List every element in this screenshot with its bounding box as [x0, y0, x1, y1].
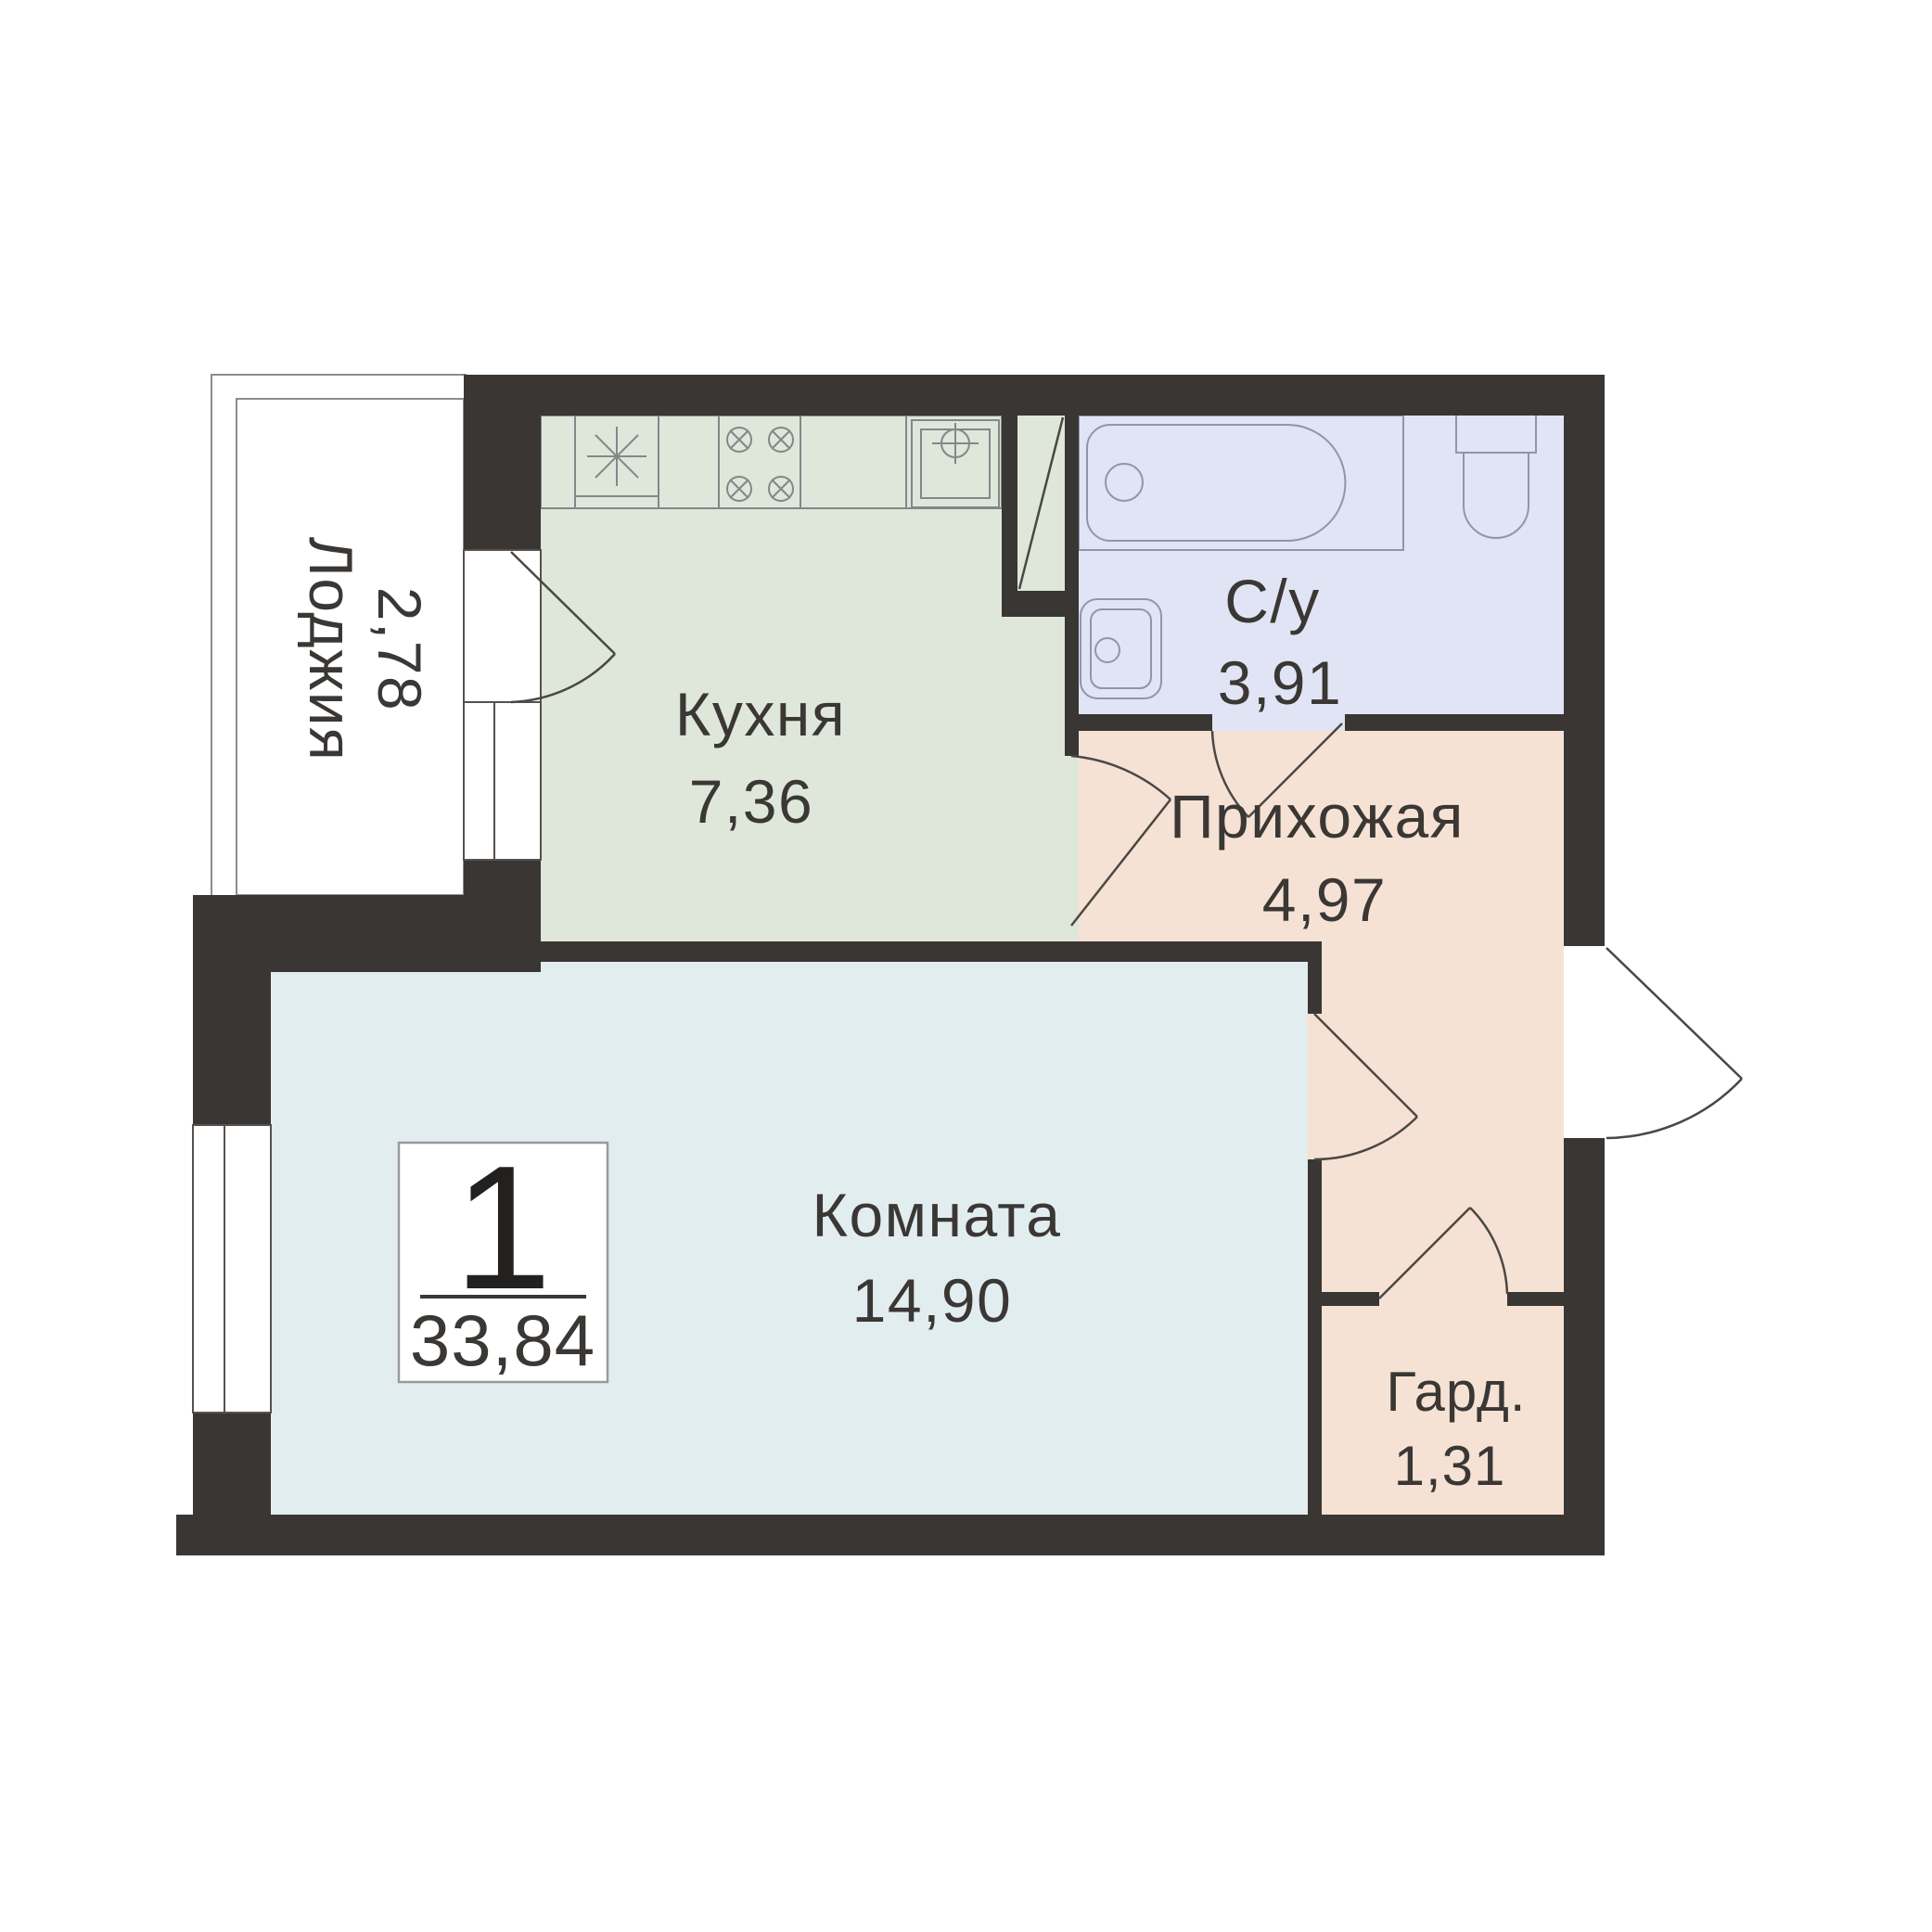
- wall-right-upper: [1564, 375, 1605, 946]
- bathroom-label: С/у: [1224, 567, 1321, 635]
- wall-left-lower: [193, 1413, 271, 1515]
- wall-left-mid: [193, 972, 271, 1125]
- floor-plan-page: Лоджия 2,78 Кухня 7,36 С/у 3,91 Прихожая…: [0, 0, 1932, 1932]
- wall-room-hallway-b: [1308, 1159, 1322, 1306]
- wardrobe-door-gap: [1379, 1292, 1507, 1306]
- room-area-label: 14,90: [852, 1266, 1013, 1335]
- kitchen-door-gap: [1065, 756, 1079, 941]
- balcony-window: [464, 702, 541, 860]
- wall-right-lower: [1564, 1138, 1605, 1555]
- entrance-door-leaf: [1606, 948, 1742, 1079]
- kitchen-area-label: 7,36: [689, 767, 813, 836]
- wall-wardrobe-top-left: [1308, 1292, 1379, 1306]
- wall-wardrobe-top-right: [1507, 1292, 1564, 1306]
- floor-plan: Лоджия 2,78 Кухня 7,36 С/у 3,91 Прихожая…: [0, 0, 1932, 1932]
- wall-room-top: [271, 941, 1322, 962]
- balcony-door-frame: [464, 550, 541, 702]
- room-door-gap: [1308, 1014, 1322, 1159]
- kitchen-area: [541, 416, 1065, 941]
- kitchen-label: Кухня: [675, 680, 846, 748]
- hallway-label: Прихожая: [1170, 782, 1465, 851]
- wall-bath-bottom-right: [1345, 714, 1564, 731]
- wardrobe-label: Гард.: [1386, 1361, 1526, 1423]
- unit-total-area: 33,84: [410, 1299, 595, 1381]
- wall-loggia-kitchen-top: [464, 375, 541, 550]
- loggia-area: 2,78: [365, 587, 434, 711]
- wall-room-hallway-a: [1308, 962, 1322, 1014]
- wall-top: [464, 375, 1605, 416]
- wardrobe-area-label: 1,31: [1394, 1435, 1506, 1497]
- room-label: Комната: [812, 1181, 1062, 1249]
- wall-bath-bottom-left: [1079, 714, 1212, 731]
- entrance-door-swing: [1606, 1079, 1742, 1138]
- room-window: [193, 1125, 271, 1413]
- wall-duct-left: [1002, 416, 1017, 591]
- hallway-area-label: 4,97: [1262, 865, 1387, 934]
- bathroom-area-label: 3,91: [1218, 648, 1342, 717]
- unit-badge: 1 33,84: [399, 1130, 608, 1382]
- window-frame: [193, 1125, 271, 1413]
- loggia-label: Лоджия: [297, 537, 365, 762]
- wall-kitchen-hallway: [1065, 416, 1079, 756]
- wall-bottom: [176, 1515, 1605, 1555]
- wall-wardrobe-left: [1308, 1306, 1322, 1515]
